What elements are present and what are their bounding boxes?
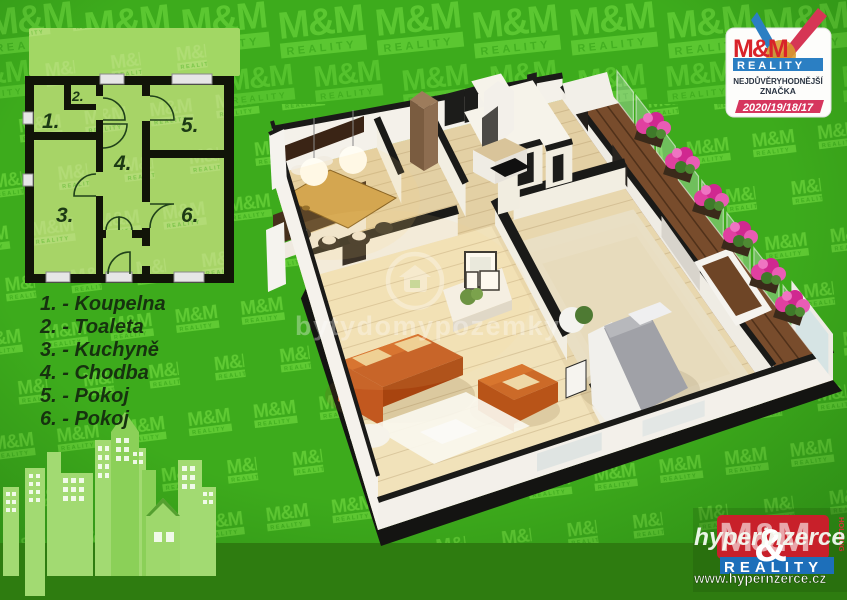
svg-text:1.: 1. [42, 110, 60, 133]
svg-text:5. - Pokoj: 5. - Pokoj [40, 385, 129, 407]
svg-text:6. - Pokoj: 6. - Pokoj [40, 408, 129, 430]
svg-text:ZNAČKA: ZNAČKA [760, 85, 796, 96]
svg-text:1. - Koupelna: 1. - Koupelna [40, 293, 166, 315]
svg-text:2. - Toaleta: 2. - Toaleta [39, 316, 144, 338]
svg-text:6.: 6. [181, 204, 199, 227]
svg-text:5.: 5. [181, 114, 199, 137]
svg-text:4. - Chodba: 4. - Chodba [39, 362, 149, 384]
svg-text:NEJDŮVĚRYHODNĚJŠÍ: NEJDŮVĚRYHODNĚJŠÍ [733, 76, 823, 86]
svg-text:2.: 2. [71, 88, 84, 104]
svg-text:2020/19/18/17: 2020/19/18/17 [742, 102, 814, 114]
svg-text:3. - Kuchyně: 3. - Kuchyně [40, 339, 159, 361]
svg-text:REALITY: REALITY [737, 60, 805, 72]
svg-text:4.: 4. [113, 152, 132, 175]
svg-text:www.hypernzerce.cz: www.hypernzerce.cz [693, 571, 827, 586]
svg-text:3.: 3. [56, 204, 74, 227]
svg-text:bytydomypozemky: bytydomypozemky [295, 311, 561, 341]
svg-text:hyperinzerce: hyperinzerce [694, 524, 845, 551]
